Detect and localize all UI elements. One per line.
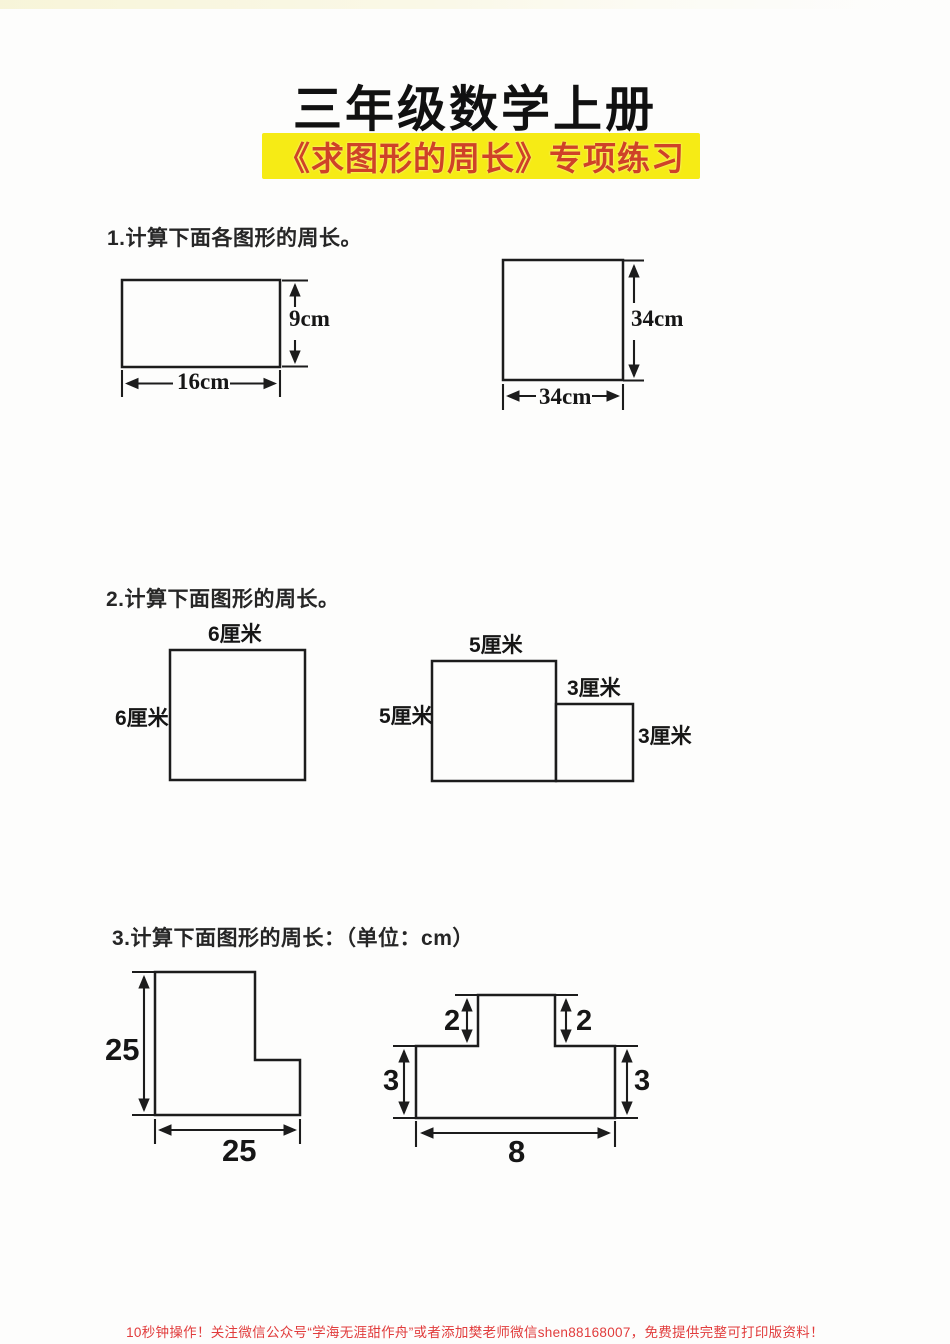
q3-tshape-top-right-label: 2 [575, 1006, 593, 1036]
q1-rect-height-label: 9cm [288, 307, 331, 331]
q3-t-shape-figure [393, 995, 638, 1147]
q2-square-figure [170, 650, 305, 780]
q1-square-width-label: 34cm [538, 385, 592, 409]
q1-rect-width-label: 16cm [176, 370, 230, 394]
q2-step-small-right-label: 3厘米 [637, 726, 693, 748]
q2-step-big-left-label: 5厘米 [378, 706, 434, 728]
q2-square-top-label: 6厘米 [207, 624, 263, 646]
q3-lshape-left-label: 25 [104, 1034, 140, 1067]
q2-step-big-top-label: 5厘米 [468, 635, 524, 657]
q3-tshape-right-label: 3 [633, 1066, 651, 1096]
q2-step-small-top-label: 3厘米 [566, 678, 622, 700]
q1-square-height-label: 34cm [630, 307, 684, 331]
footer-promo-text: 10秒钟操作！关注微信公众号“学海无涯甜作舟”或者添加樊老师微信shen8816… [0, 1321, 950, 1341]
q3-tshape-bottom-label: 8 [507, 1136, 526, 1169]
q3-lshape-bottom-label: 25 [221, 1135, 257, 1168]
worksheet-page: 三年级数学上册 《求图形的周长》专项练习 1.计算下面各图形的周长。 2.计算下… [0, 0, 950, 1344]
q2-square-left-label: 6厘米 [114, 708, 170, 730]
figures-layer [0, 0, 950, 1344]
q3-l-shape-figure [132, 972, 300, 1144]
q3-tshape-top-left-label: 2 [443, 1006, 461, 1036]
q3-tshape-left-label: 3 [382, 1066, 400, 1096]
